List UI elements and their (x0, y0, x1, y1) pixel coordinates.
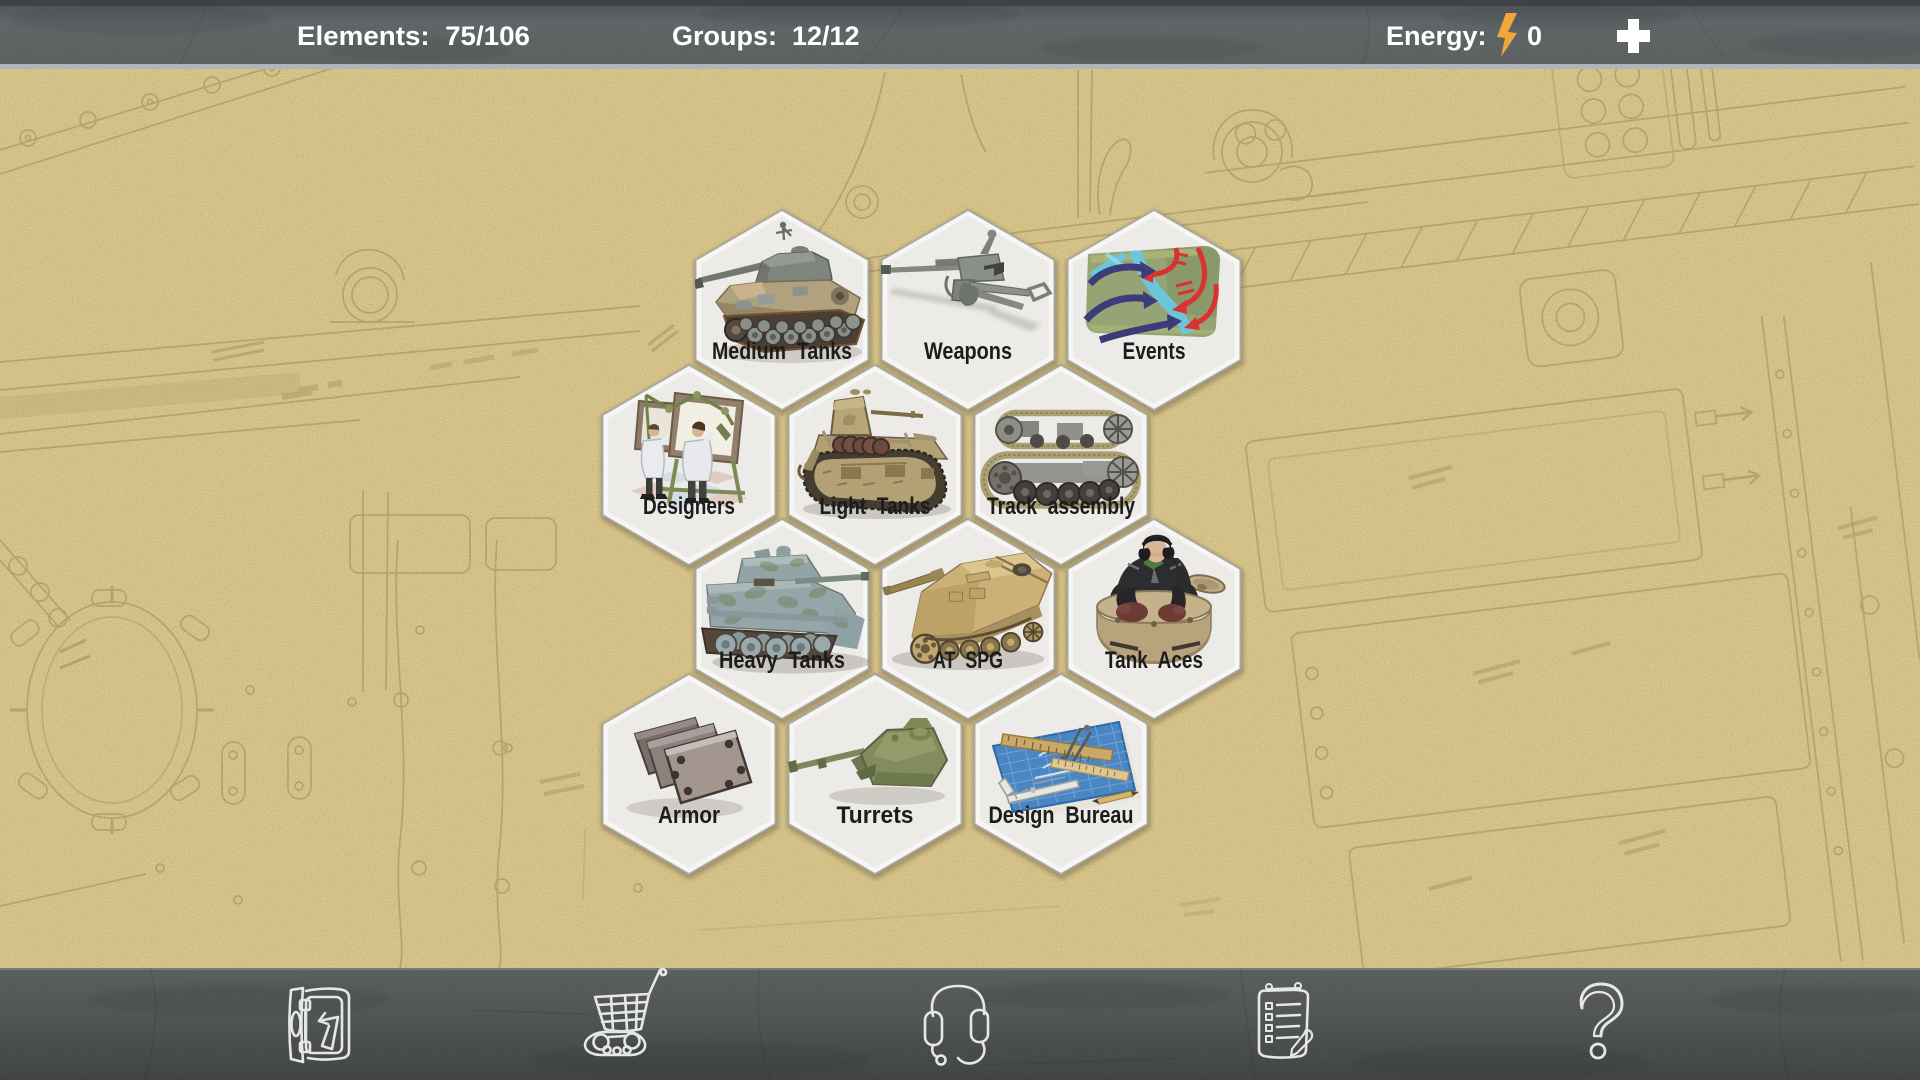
svg-text:Events: Events (1123, 338, 1186, 365)
svg-text:Armor: Armor (658, 802, 720, 829)
svg-text:AT SPG: AT SPG (933, 647, 1003, 674)
svg-text:Weapons: Weapons (924, 338, 1012, 365)
svg-text:Turrets: Turrets (837, 802, 914, 829)
svg-text:0: 0 (1527, 21, 1542, 51)
svg-text:Medium Tanks: Medium Tanks (712, 338, 852, 365)
svg-text:Designers: Designers (643, 493, 735, 520)
svg-text:Design Bureau: Design Bureau (989, 802, 1134, 829)
svg-text:Track assembly: Track assembly (987, 493, 1136, 520)
svg-text:Elements: 75/106: Elements: 75/106 (297, 21, 530, 51)
svg-text:Groups: 12/12: Groups: 12/12 (672, 21, 860, 51)
svg-text:Tank Aces: Tank Aces (1105, 647, 1203, 674)
svg-text:Heavy Tanks: Heavy Tanks (719, 647, 845, 674)
svg-text:Light Tanks: Light Tanks (820, 493, 931, 520)
svg-text:Energy:: Energy: (1386, 21, 1487, 51)
